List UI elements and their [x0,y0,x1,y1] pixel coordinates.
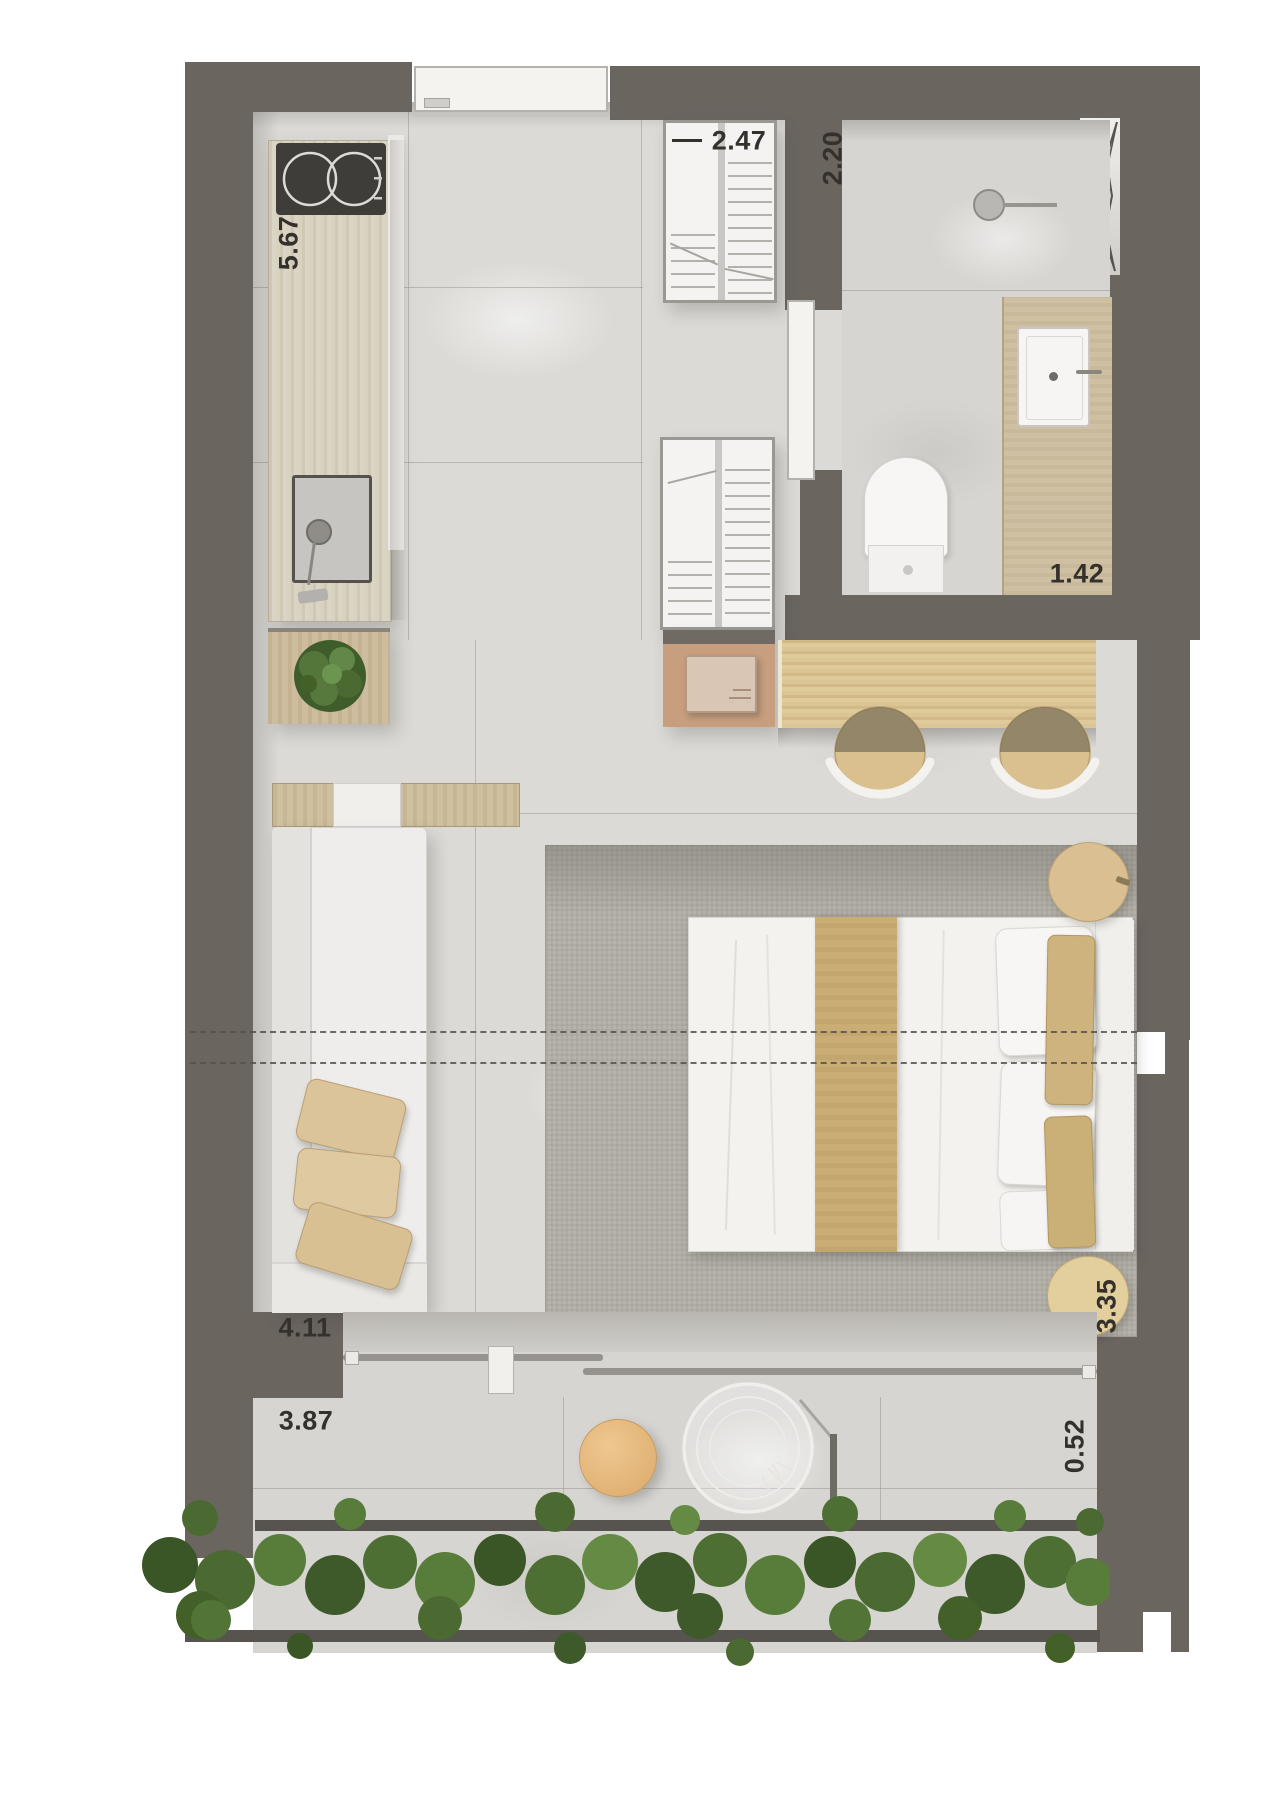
entry-door-handle [424,98,450,108]
floor-grout-line [475,640,476,1312]
wall-bathroom-south [785,595,1137,640]
sink-drain [1049,372,1058,381]
closet-shelves [668,550,712,618]
closet-divider [715,440,722,627]
projection-dashed-line [190,1031,1137,1033]
microwave-vent [733,689,751,691]
wall-bathroom-left [785,66,842,310]
dim-vanity-width: 1.42 [1050,559,1105,590]
shower-arm [1003,203,1057,207]
bed-headboard-edge [1095,920,1134,1250]
bathroom-wall-shadow [842,120,1110,142]
toilet-tank [868,545,944,593]
sliding-door-frame [488,1346,514,1394]
dim-tick [672,139,702,142]
projection-dashed-line [190,1062,1137,1064]
floor-grout-line [408,112,409,640]
closet-diagonal [668,470,717,484]
facade-sill [343,1312,1097,1352]
wall-bathroom-left-lower [800,470,842,600]
kitchen-sink [292,475,372,583]
bathroom-grout-line [842,290,1110,291]
wall-notch-bottom [1143,1612,1171,1652]
wall-notch [1133,1032,1165,1074]
bed-accent-pillow [1044,1115,1097,1249]
wall-top-left [185,62,412,112]
console-tray [333,783,401,827]
shower-head [973,189,1005,221]
dim-balcony-width: 3.87 [279,1406,334,1437]
dim-entry-closet: 2.47 [712,126,767,157]
floor-plan: 5.67 2.47 2.20 1.42 4.11 3.87 3.35 0.52 [0,0,1268,1800]
dim-living-width: 4.11 [278,1313,331,1344]
dim-bedroom-depth: 3.35 [1092,1279,1123,1334]
toilet-flush-button [903,565,913,575]
sliding-door-cap [345,1351,359,1365]
entry-threshold [414,114,610,117]
floor-grout-line [641,120,642,640]
bed-accent-pillow [1045,935,1096,1106]
toilet-bowl [864,457,948,557]
counter-shadow [390,140,408,620]
wall-right-bathroom [1110,66,1200,640]
plant [284,632,376,720]
cooktop [276,143,386,215]
microwave [685,655,757,713]
sliding-door-rail [343,1354,603,1361]
wall-right-bedroom [1137,640,1190,1040]
closet-shelves [725,458,770,618]
kitchen-faucet [306,519,332,545]
sliding-door-cap [1082,1365,1096,1379]
vanity-sink [1017,327,1090,427]
dim-bathroom-depth: 2.20 [818,131,849,186]
cooktop-burners [276,143,386,215]
dim-kitchen-counter: 5.67 [274,216,305,271]
stools [790,690,1120,820]
linen-closet [660,437,775,630]
bathroom-door [787,300,815,480]
dim-balcony-depth: 0.52 [1060,1419,1091,1474]
bed-runner [815,917,897,1252]
sink-faucet [1076,370,1102,374]
hedge-planter [140,1470,1110,1670]
microwave-vent [729,697,751,699]
